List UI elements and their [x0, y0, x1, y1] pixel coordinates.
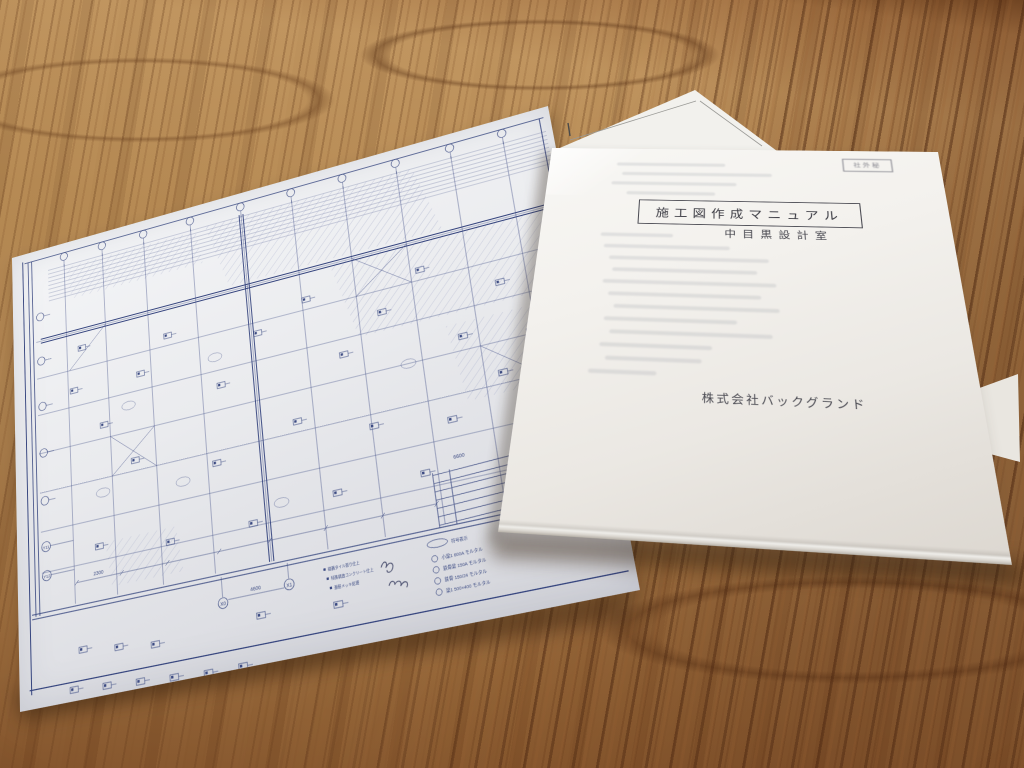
cover-title: 施工図作成マニュアル [655, 204, 844, 224]
cover-title-box: 施工図作成マニュアル [637, 199, 863, 228]
axis-label-x1: X1 [286, 582, 292, 589]
stamp-label: 社外秘 [853, 161, 882, 169]
axis-label-y11: Y11 [43, 544, 50, 550]
cover-subtitle: 中目黒設計室 [662, 225, 898, 244]
svg-text:符号表示: 符号表示 [451, 534, 468, 544]
svg-text:亜鉛メッキ処理: 亜鉛メッキ処理 [334, 580, 360, 591]
photo-scene: 2300 6600 X0 X1 Y12 Y11 4600 磁器タイル張り仕上 [0, 0, 1024, 768]
legend-block: 符号表示 小梁1 600A モルタル 鉄骨梁 150A モルタル 鉄骨 150/… [427, 529, 492, 596]
axis-label-x0: X0 [220, 601, 226, 607]
dim-4600: 4600 [250, 584, 262, 593]
axis-label-y12: Y12 [43, 573, 50, 580]
margin-notes: 磁器タイル張り仕上 特殊構造コンクリート仕上 亜鉛メッキ処理 [323, 557, 375, 592]
company-name: 株式会社バックグランド [664, 388, 907, 416]
stamp-box: 社外秘 [842, 159, 893, 172]
dim-2300: 2300 [93, 568, 104, 577]
dim-6600: 6600 [453, 451, 466, 460]
manual-cover: 社外秘 施工図作成マニュアル 中目黒設計室 株式会社バックグランド [498, 148, 1012, 565]
